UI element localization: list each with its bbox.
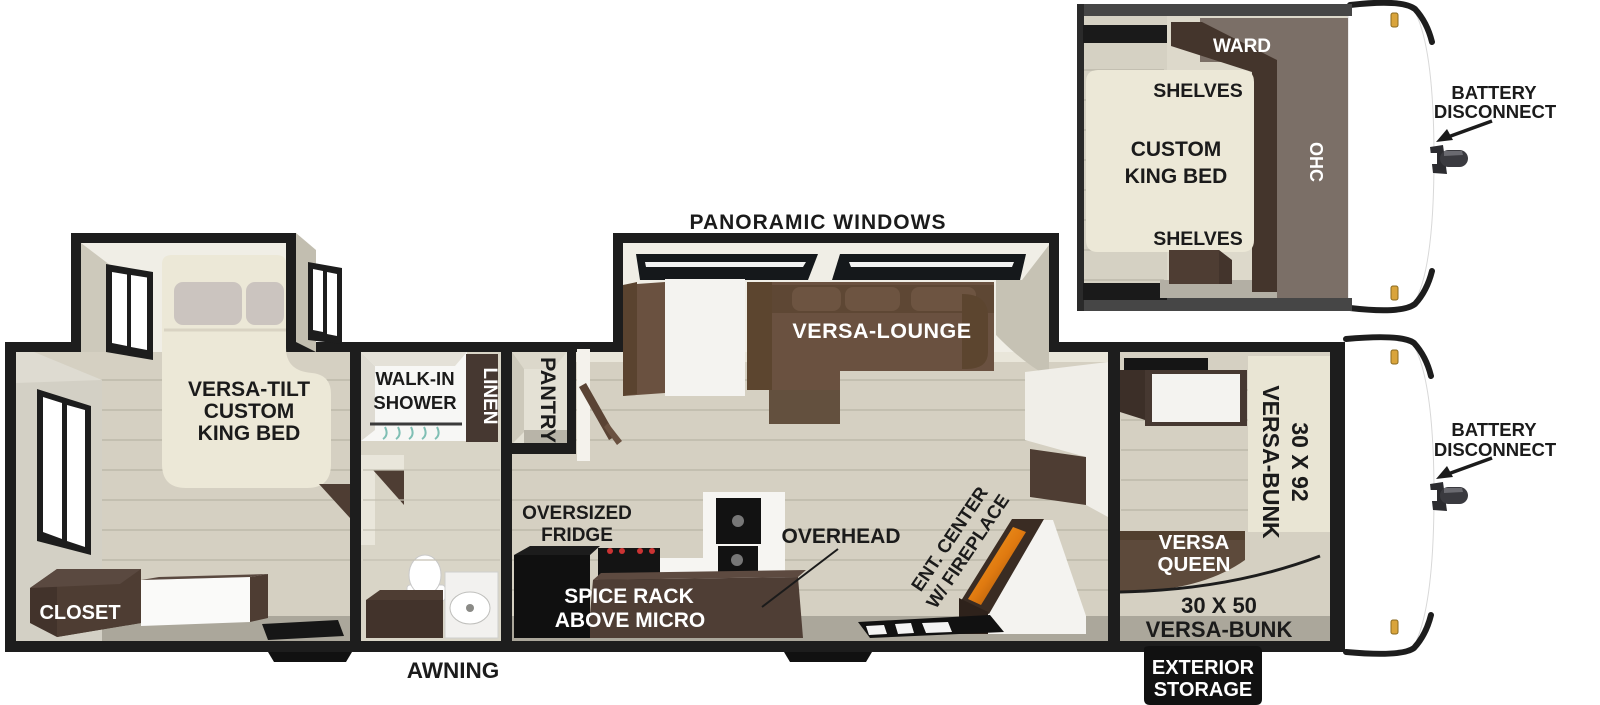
svg-text:FRIDGE: FRIDGE [541,525,613,546]
svg-text:BATTERY: BATTERY [1451,419,1537,440]
svg-text:DISCONNECT: DISCONNECT [1434,101,1557,122]
svg-text:SHELVES: SHELVES [1153,80,1243,102]
svg-text:QUEEN: QUEEN [1158,553,1231,576]
svg-text:30 X 92: 30 X 92 [1287,422,1313,501]
svg-text:VERSA-TILT: VERSA-TILT [188,378,310,401]
svg-text:BATTERY: BATTERY [1451,82,1537,103]
svg-text:LINEN: LINEN [479,368,500,425]
svg-text:WALK-IN: WALK-IN [375,368,454,389]
svg-text:EXTERIOR: EXTERIOR [1152,657,1255,679]
svg-text:VERSA: VERSA [1159,531,1230,554]
svg-text:SHELVES: SHELVES [1153,228,1243,250]
svg-text:DISCONNECT: DISCONNECT [1434,439,1557,460]
svg-text:SHOWER: SHOWER [373,392,456,413]
svg-text:OVERSIZED: OVERSIZED [522,503,632,524]
svg-text:KING BED: KING BED [198,422,301,445]
svg-text:STORAGE: STORAGE [1154,679,1253,701]
svg-text:VERSA-LOUNGE: VERSA-LOUNGE [792,319,971,343]
svg-text:OHC: OHC [1306,142,1326,182]
svg-text:ABOVE MICRO: ABOVE MICRO [555,609,706,632]
svg-text:OVERHEAD: OVERHEAD [781,525,900,548]
svg-text:CUSTOM: CUSTOM [204,400,295,423]
svg-text:SPICE RACK: SPICE RACK [564,585,694,608]
svg-text:VERSA-BUNK: VERSA-BUNK [1146,617,1293,642]
svg-text:30 X 50: 30 X 50 [1181,593,1257,618]
svg-text:WARD: WARD [1213,36,1271,57]
svg-text:VERSA-BUNK: VERSA-BUNK [1258,385,1284,539]
svg-text:PANORAMIC WINDOWS: PANORAMIC WINDOWS [690,211,947,234]
svg-text:AWNING: AWNING [407,658,500,683]
svg-text:CLOSET: CLOSET [39,602,120,624]
svg-text:KING BED: KING BED [1125,165,1228,188]
svg-text:PANTRY: PANTRY [536,357,560,443]
svg-text:CUSTOM: CUSTOM [1131,138,1222,161]
